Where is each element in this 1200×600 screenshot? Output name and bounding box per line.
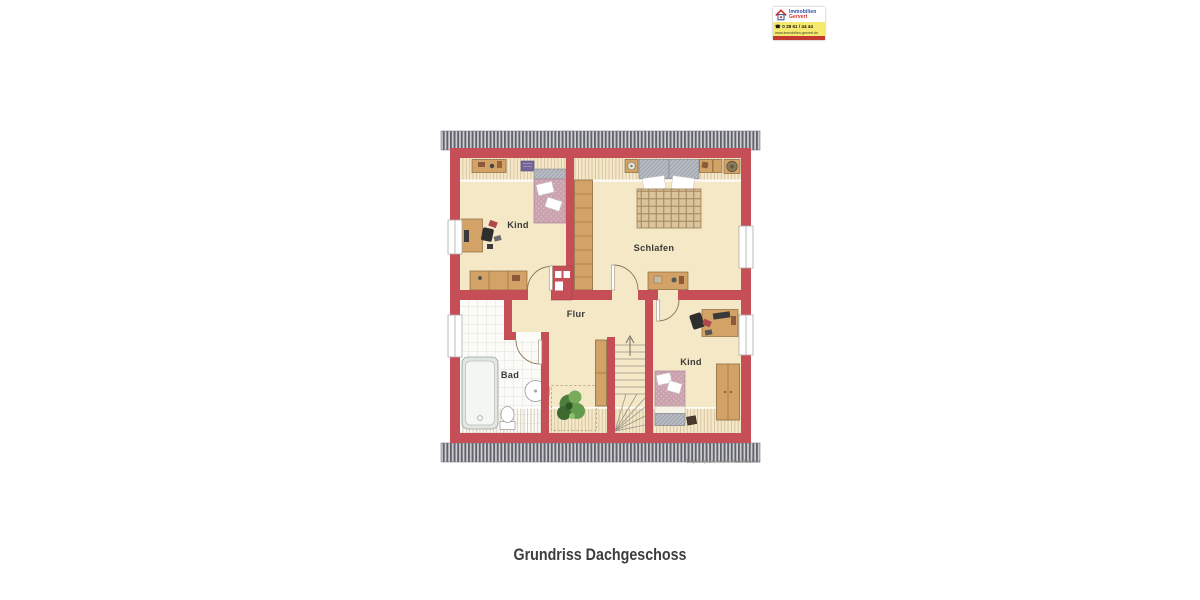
double-bed: [637, 160, 701, 229]
bed-kind-bottom-right: [655, 371, 685, 426]
bed-kind-top-left: [534, 169, 566, 223]
hall-cabinet: [596, 340, 607, 406]
window-kind-top-left: [448, 220, 462, 254]
agency-logo: Immobilien Gervert ☎ 0 28 61 / 44 44 www…: [773, 7, 825, 40]
room-label-schlafen: Schlafen: [634, 243, 675, 253]
wardrobe-kind-bottom-right: [717, 364, 740, 420]
wardrobe-tall: [575, 180, 593, 290]
nightstand-right: [700, 160, 713, 173]
sideboard-schlafen: [648, 272, 688, 290]
plan-disclaimer: Exposeplan, nicht maßstäblich: [686, 459, 760, 465]
logo-phone-row: ☎ 0 28 61 / 44 44: [773, 22, 825, 31]
window-bad: [448, 315, 462, 357]
sideboard-kind-top-left: [470, 271, 527, 290]
nightstand-left: [625, 160, 638, 173]
room-label-bad: Bad: [501, 370, 519, 380]
logo-header: Immobilien Gervert: [773, 7, 825, 22]
page-title-text: Grundriss Dachgeschoss: [513, 545, 686, 565]
logo-wordmark: Immobilien Gervert: [789, 10, 816, 20]
wall-shelf: [472, 160, 506, 173]
logo-red-bar: [773, 36, 825, 40]
cushion: [521, 161, 534, 171]
logo-phone-number: 0 28 61 / 44 44: [782, 24, 813, 29]
roof-overhang-top: [441, 131, 760, 150]
window-kind-bottom-right: [739, 315, 753, 355]
logo-company-line2: Gervert: [789, 15, 816, 20]
floor-plan: Kind Schlafen Flur Bad Kind: [440, 126, 762, 468]
room-label-kind-top-left: Kind: [507, 220, 529, 230]
bathtub: [462, 357, 498, 429]
window-schlafen: [739, 226, 753, 268]
dresser-corner: [713, 160, 740, 174]
phone-icon: ☎: [775, 24, 781, 30]
toilet: [500, 407, 515, 430]
bag: [686, 416, 696, 425]
house-logo-icon: [775, 9, 787, 21]
room-label-kind-bottom-right: Kind: [680, 357, 702, 367]
page-title: Grundriss Dachgeschoss: [0, 545, 1200, 565]
room-label-flur: Flur: [567, 309, 586, 319]
chimney: [551, 266, 572, 300]
